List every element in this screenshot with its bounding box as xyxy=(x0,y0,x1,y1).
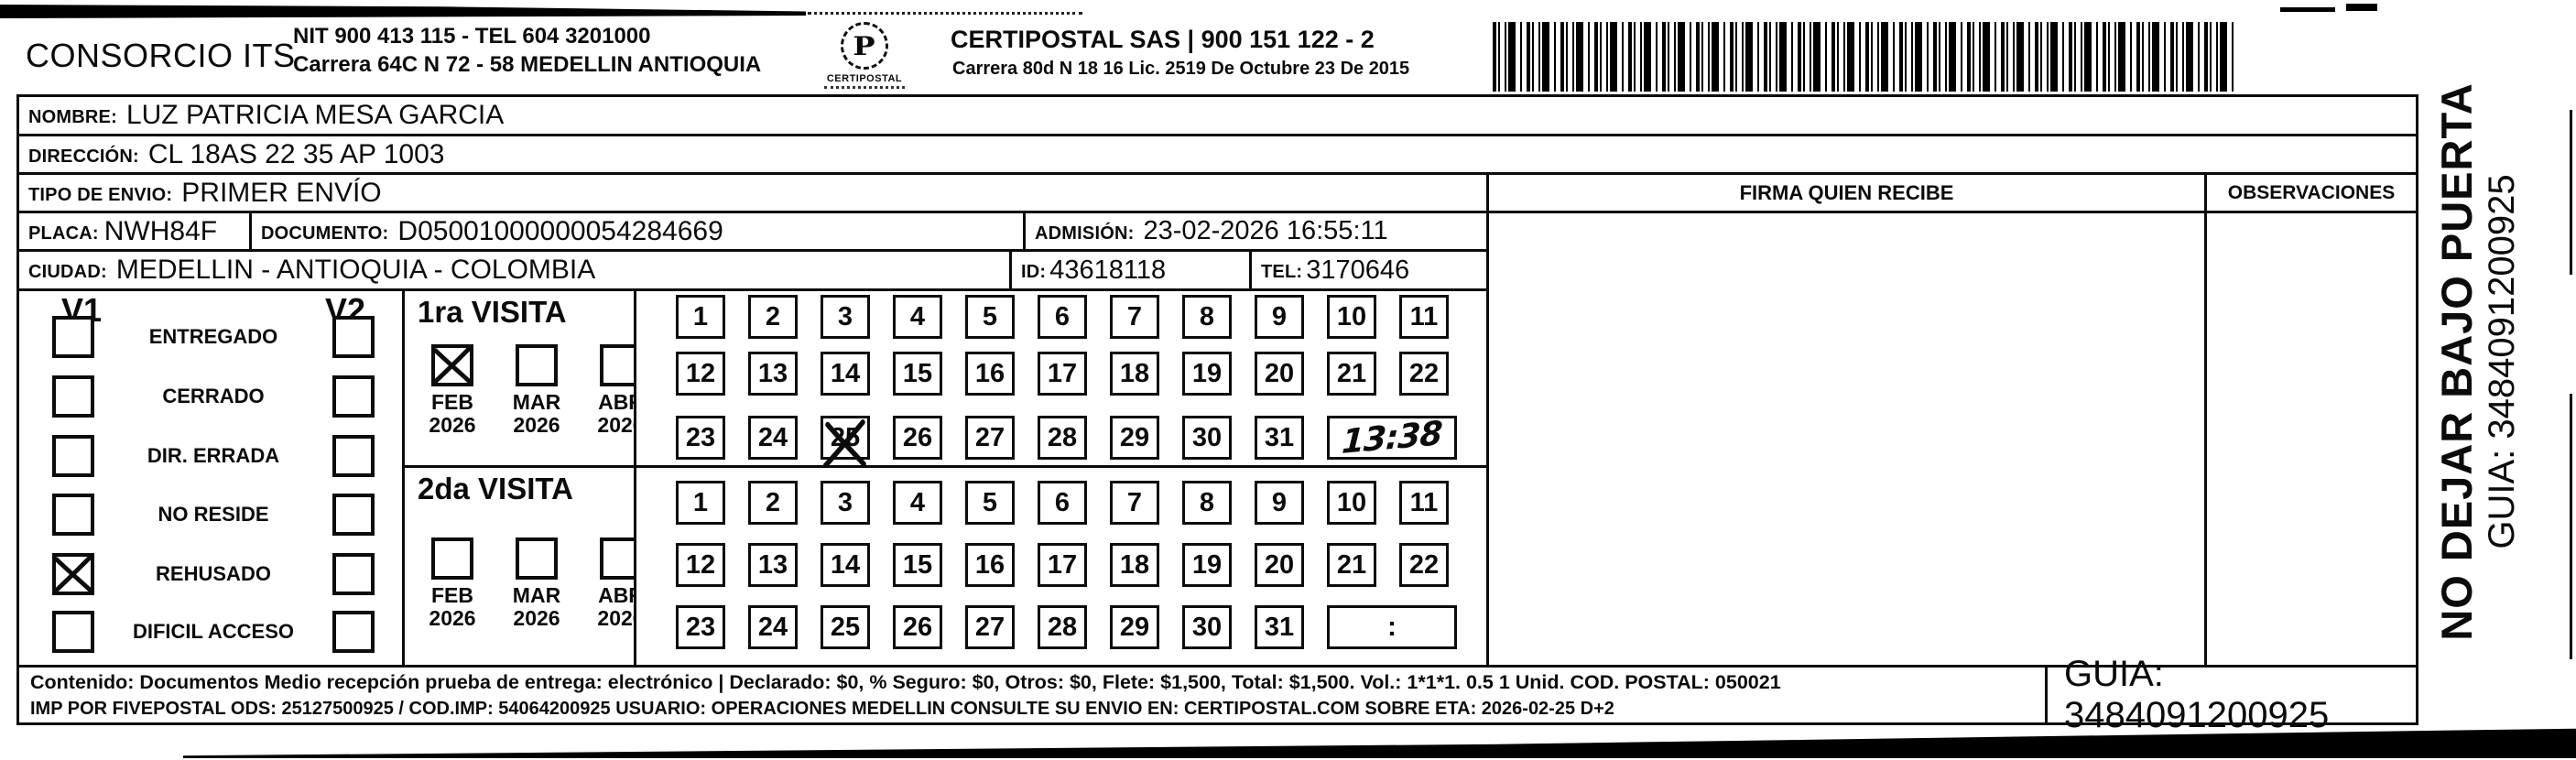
scan-artifact-top-streak xyxy=(0,5,806,18)
day-cell-visit1-29: 29 xyxy=(1110,416,1159,460)
scan-artifact-mark xyxy=(2280,7,2335,12)
id-label: ID: xyxy=(1021,257,1046,283)
day-cell-visit2-17: 17 xyxy=(1038,543,1087,587)
month-checkbox-visit2-feb xyxy=(431,537,473,580)
footer-info-cell: Contenido: Documentos Medio recepción pr… xyxy=(16,665,2048,725)
nombre-label: NOMBRE: xyxy=(28,103,117,128)
month-option-feb-visit1: FEB2026 xyxy=(414,344,491,437)
id-cell: ID: 43618118 xyxy=(1009,249,1252,291)
time-colon-placeholder: : xyxy=(1387,612,1397,643)
visit1-day-grid: 1234567891011121314151617181920212223242… xyxy=(634,288,1489,468)
visit2-day-grid: 1234567891011121314151617181920212223242… xyxy=(634,465,1489,668)
status-option-row-entregado: ENTREGADO xyxy=(52,315,375,359)
status-panel: V1 V2 ENTREGADOCERRADODIR. ERRADANO RESI… xyxy=(16,288,405,668)
day-cell-visit2-3: 3 xyxy=(821,481,870,525)
day-cell-visit2-24: 24 xyxy=(748,605,798,649)
status-option-row-rehusado: REHUSADO xyxy=(52,552,375,596)
day-cell-visit1-13: 13 xyxy=(748,352,798,396)
checkbox-v1-entregado xyxy=(52,316,94,358)
day-cell-visit1-24: 24 xyxy=(748,416,798,460)
documento-value: D05001000000054284669 xyxy=(397,216,723,247)
month-name-label: FEB xyxy=(431,391,473,413)
day-cell-visit2-9: 9 xyxy=(1255,481,1304,525)
day-cell-visit1-8: 8 xyxy=(1182,295,1232,339)
day-cell-visit2-22: 22 xyxy=(1399,543,1449,587)
day-cell-visit1-7: 7 xyxy=(1110,295,1159,339)
nombre-row: NOMBRE: LUZ PATRICIA MESA GARCIA xyxy=(16,94,2418,136)
visit1-panel: 1ra VISITA FEB2026MAR2026ABR2026 xyxy=(402,288,636,468)
day-cell-visit1-20: 20 xyxy=(1255,352,1304,396)
day-cell-visit2-11: 11 xyxy=(1399,481,1449,525)
ciudad-value: MEDELLIN - ANTIOQUIA - COLOMBIA xyxy=(116,255,595,286)
checkbox-v2-dir-errada xyxy=(332,435,375,477)
company-name: CONSORCIO ITS xyxy=(26,37,296,75)
month-year-label: 2026 xyxy=(513,606,560,630)
footer-guia-value: GUIA: 3484091200925 xyxy=(2064,654,2407,736)
tipo-envio-cell: TIPO DE ENVIO: PRIMER ENVÍO xyxy=(16,172,1489,213)
day-cell-visit1-26: 26 xyxy=(893,416,942,460)
documento-cell: DOCUMENTO: D05001000000054284669 xyxy=(249,211,1026,252)
scan-artifact-mark xyxy=(2346,4,2377,11)
tel-value: 3170646 xyxy=(1306,255,1409,286)
status-option-row-dificil-acceso: DIFICIL ACCESO xyxy=(52,610,375,654)
certipostal-logo-icon: P xyxy=(841,22,888,70)
day-row-visit1-1: 1234567891011 xyxy=(676,295,1449,339)
day-cell-visit1-27: 27 xyxy=(965,416,1015,460)
day-row-visit2-2: 1213141516171819202122 xyxy=(676,543,1449,587)
provider-address-line: Carrera 80d N 18 16 Lic. 2519 De Octubre… xyxy=(952,59,1409,80)
day-cell-visit1-1: 1 xyxy=(676,295,725,339)
placa-value: NWH84F xyxy=(104,216,217,247)
handwritten-x-icon xyxy=(821,415,869,472)
firma-header-label: FIRMA QUIEN RECIBE xyxy=(1740,181,1954,205)
day-cell-visit1-23: 23 xyxy=(676,416,725,460)
observaciones-header-label: OBSERVACIONES xyxy=(2228,182,2395,204)
month-year-label: 2026 xyxy=(429,606,475,630)
day-cell-visit2-1: 1 xyxy=(676,481,725,525)
day-cell-visit2-15: 15 xyxy=(893,543,942,587)
day-cell-visit1-17: 17 xyxy=(1038,352,1087,396)
visit2-panel: 2da VISITA FEB2026MAR2026ABR2026 xyxy=(402,465,636,668)
tipo-envio-value: PRIMER ENVÍO xyxy=(181,178,381,209)
footer-info-line2: IMP POR FIVEPOSTAL ODS: 25127500925 / CO… xyxy=(30,697,1614,721)
day-cell-visit1-28: 28 xyxy=(1038,416,1087,460)
month-checkbox-visit1-mar xyxy=(516,344,558,386)
time-box-visit2: : xyxy=(1327,605,1457,649)
day-cell-visit2-2: 2 xyxy=(748,481,798,525)
day-cell-visit2-30: 30 xyxy=(1182,605,1232,649)
tel-cell: TEL: 3170646 xyxy=(1249,249,1489,291)
id-value: 43618118 xyxy=(1049,255,1166,286)
footer-info-line1: Contenido: Documentos Medio recepción pr… xyxy=(30,669,1781,695)
checkbox-v1-rehusado xyxy=(52,553,94,595)
day-cell-visit2-5: 5 xyxy=(965,481,1015,525)
day-cell-visit1-3: 3 xyxy=(821,295,870,339)
handwritten-time-value: 13:38 xyxy=(1341,415,1442,461)
scan-artifact-right-edge xyxy=(2570,394,2572,659)
day-cell-visit1-2: 2 xyxy=(748,295,798,339)
status-option-label-rehusado: REHUSADO xyxy=(94,562,332,586)
admision-cell: ADMISIÓN: 23-02-2026 16:55:11 xyxy=(1023,211,1489,252)
logo-glyph: P xyxy=(853,31,875,61)
month-name-label: MAR xyxy=(513,391,560,413)
day-cell-visit2-7: 7 xyxy=(1110,481,1159,525)
observaciones-area xyxy=(2204,211,2418,668)
status-option-row-no-reside: NO RESIDE xyxy=(52,493,375,537)
ciudad-label: CIUDAD: xyxy=(28,257,107,283)
side-note: NO DEJAR BAJO PUERTA GUIA: 3484091200925 xyxy=(2418,78,2537,646)
admision-label: ADMISIÓN: xyxy=(1035,219,1134,244)
day-cell-visit1-18: 18 xyxy=(1110,352,1159,396)
month-checkbox-visit2-mar xyxy=(516,537,558,580)
day-cell-visit2-14: 14 xyxy=(821,543,870,587)
day-cell-visit2-21: 21 xyxy=(1327,543,1376,587)
day-cell-visit2-6: 6 xyxy=(1038,481,1087,525)
day-cell-visit2-23: 23 xyxy=(676,605,725,649)
checkbox-v2-entregado xyxy=(332,316,375,358)
day-cell-visit1-25: 25 xyxy=(821,416,870,460)
tel-label: TEL: xyxy=(1261,257,1302,283)
sender-nit-line: NIT 900 413 115 - TEL 604 3201000 xyxy=(293,22,761,50)
day-cell-visit1-11: 11 xyxy=(1399,295,1449,339)
day-cell-visit1-9: 9 xyxy=(1255,295,1304,339)
month-name-label: MAR xyxy=(513,584,560,606)
day-cell-visit1-21: 21 xyxy=(1327,352,1376,396)
day-cell-visit1-30: 30 xyxy=(1182,416,1232,460)
day-cell-visit2-29: 29 xyxy=(1110,605,1159,649)
status-option-label-cerrado: CERRADO xyxy=(94,385,332,408)
day-cell-visit2-26: 26 xyxy=(893,605,942,649)
status-option-label-dificil-acceso: DIFICIL ACCESO xyxy=(94,620,332,644)
tipo-envio-label: TIPO DE ENVIO: xyxy=(28,180,172,206)
day-cell-visit1-5: 5 xyxy=(965,295,1015,339)
day-cell-visit1-10: 10 xyxy=(1327,295,1376,339)
day-cell-visit1-15: 15 xyxy=(893,352,942,396)
scan-artifact-top-dashes xyxy=(808,12,1082,15)
visit1-title: 1ra VISITA xyxy=(418,295,567,330)
scan-artifact-right-edge xyxy=(2570,110,2572,275)
direccion-row: DIRECCIÓN: CL 18AS 22 35 AP 1003 xyxy=(16,134,2418,175)
day-cell-visit2-16: 16 xyxy=(965,543,1015,587)
day-row-visit2-1: 1234567891011 xyxy=(676,481,1449,525)
observaciones-header-cell: OBSERVACIONES xyxy=(2204,172,2418,213)
month-year-label: 2026 xyxy=(513,413,560,437)
visit2-title: 2da VISITA xyxy=(418,472,573,506)
visit1-months: FEB2026MAR2026ABR2026 xyxy=(414,344,659,437)
day-cell-visit2-13: 13 xyxy=(748,543,798,587)
day-row-visit1-3: 23242526272829303113:38 xyxy=(676,416,1457,460)
scanned-delivery-form: { "header": { "company": "CONSORCIO ITS"… xyxy=(0,0,2576,760)
handwritten-x-icon xyxy=(429,342,475,388)
visit2-months: FEB2026MAR2026ABR2026 xyxy=(414,537,659,630)
day-row-visit2-3: 232425262728293031: xyxy=(676,605,1457,649)
provider-name-line: CERTIPOSTAL SAS | 900 151 122 - 2 xyxy=(951,26,1375,54)
direccion-label: DIRECCIÓN: xyxy=(28,142,139,168)
checkbox-v1-cerrado xyxy=(52,375,94,418)
day-cell-visit2-10: 10 xyxy=(1327,481,1376,525)
month-year-label: 2026 xyxy=(429,413,475,437)
checkbox-v2-cerrado xyxy=(332,375,375,418)
day-cell-visit1-31: 31 xyxy=(1255,416,1304,460)
status-option-label-dir-errada: DIR. ERRADA xyxy=(94,444,332,468)
status-option-label-entregado: ENTREGADO xyxy=(94,325,332,349)
status-option-row-dir-errada: DIR. ERRADA xyxy=(52,434,375,478)
day-cell-visit2-12: 12 xyxy=(676,543,725,587)
firma-header-cell: FIRMA QUIEN RECIBE xyxy=(1486,172,2207,213)
month-name-label: FEB xyxy=(431,584,473,606)
checkbox-v1-dir-errada xyxy=(52,435,94,477)
checkbox-v1-no-reside xyxy=(52,494,94,536)
time-box-visit1: 13:38 xyxy=(1327,416,1457,460)
day-cell-visit1-22: 22 xyxy=(1399,352,1449,396)
day-cell-visit2-18: 18 xyxy=(1110,543,1159,587)
checkbox-v1-dificil-acceso xyxy=(52,611,94,653)
day-cell-visit2-8: 8 xyxy=(1182,481,1232,525)
side-note-warning: NO DEJAR BAJO PUERTA xyxy=(2431,82,2482,640)
handwritten-x-icon xyxy=(50,551,96,597)
admision-value: 23-02-2026 16:55:11 xyxy=(1143,216,1387,246)
ciudad-cell: CIUDAD: MEDELLIN - ANTIOQUIA - COLOMBIA xyxy=(16,249,1012,291)
sender-contact-block: NIT 900 413 115 - TEL 604 3201000 Carrer… xyxy=(293,22,761,79)
month-checkbox-visit1-feb xyxy=(431,344,473,386)
sender-address-line: Carrera 64C N 72 - 58 MEDELLIN ANTIOQUIA xyxy=(293,50,761,79)
month-option-mar-visit2: MAR2026 xyxy=(498,537,575,630)
firma-signature-area xyxy=(1486,211,2207,668)
checkbox-v2-dificil-acceso xyxy=(332,611,375,653)
footer-guia-cell: GUIA: 3484091200925 xyxy=(2045,665,2418,725)
day-cell-visit1-14: 14 xyxy=(821,352,870,396)
logo-wordmark: CERTIPOSTAL xyxy=(821,73,908,84)
day-cell-visit2-31: 31 xyxy=(1255,605,1304,649)
status-option-row-cerrado: CERRADO xyxy=(52,375,375,418)
placa-label: PLACA: xyxy=(28,219,99,244)
day-cell-visit1-19: 19 xyxy=(1182,352,1232,396)
day-cell-visit2-28: 28 xyxy=(1038,605,1087,649)
day-cell-visit1-4: 4 xyxy=(893,295,942,339)
day-row-visit1-2: 1213141516171819202122 xyxy=(676,352,1449,396)
day-cell-visit1-16: 16 xyxy=(965,352,1015,396)
day-cell-visit1-6: 6 xyxy=(1038,295,1087,339)
day-cell-visit2-20: 20 xyxy=(1255,543,1304,587)
checkbox-v2-rehusado xyxy=(332,553,375,595)
checkbox-v2-no-reside xyxy=(332,494,375,536)
side-note-guia: GUIA: 3484091200925 xyxy=(2482,174,2523,548)
day-cell-visit2-27: 27 xyxy=(965,605,1015,649)
documento-label: DOCUMENTO: xyxy=(261,219,388,244)
day-cell-visit2-4: 4 xyxy=(893,481,942,525)
status-option-label-no-reside: NO RESIDE xyxy=(94,503,332,527)
nombre-value: LUZ PATRICIA MESA GARCIA xyxy=(126,100,504,131)
day-cell-visit2-19: 19 xyxy=(1182,543,1232,587)
direccion-value: CL 18AS 22 35 AP 1003 xyxy=(148,139,445,170)
placa-cell: PLACA: NWH84F xyxy=(16,211,252,252)
month-option-feb-visit2: FEB2026 xyxy=(414,537,491,630)
day-cell-visit1-12: 12 xyxy=(676,352,725,396)
barcode xyxy=(1493,22,2236,92)
day-cell-visit2-25: 25 xyxy=(821,605,870,649)
logo-tagline-decoration xyxy=(824,86,905,89)
month-option-mar-visit1: MAR2026 xyxy=(498,344,575,437)
